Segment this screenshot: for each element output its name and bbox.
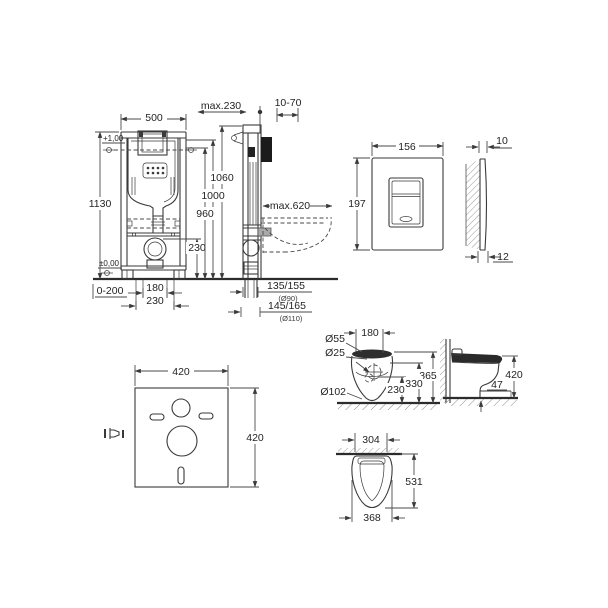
dim-outlet: Ø102 <box>320 386 346 398</box>
dim-plate-thickness-top: 10 <box>496 135 508 147</box>
dim-width: 368 <box>363 512 381 524</box>
mat-slot-bottom <box>178 467 184 484</box>
dim-outlet-height: 230 <box>188 242 206 254</box>
dim-frame-width: 500 <box>145 112 163 124</box>
dim-frame-height: 1130 <box>89 198 112 210</box>
dim-mat-height: 420 <box>246 432 264 444</box>
dim-height-top: 1060 <box>210 172 234 184</box>
frame-side-dimensions: max.230 10-70 1060 1000 960 max.620 135/… <box>186 97 332 323</box>
level-marker-floor <box>101 271 113 276</box>
flush-plate <box>372 158 443 250</box>
bowl-rear-view: Ø55 Ø25 Ø102 180 365 330 230 <box>320 327 440 410</box>
flush-actuator-side <box>261 137 272 162</box>
dim-drain-b-pipe: (Ø110) <box>280 314 303 323</box>
dim-wall-width: 304 <box>362 434 380 446</box>
flush-plate-front-view: 156 197 <box>344 140 443 250</box>
mat-slot-left <box>150 414 164 420</box>
dim-rod-spacing: 230 <box>146 295 164 307</box>
seat-rear <box>352 350 392 359</box>
sound-mat <box>135 388 228 487</box>
dim-hole-spacing: 180 <box>361 327 379 339</box>
dim-height-mid: 1000 <box>201 190 225 202</box>
dim-mat-width: 420 <box>172 366 190 378</box>
dim-drain-b: 145/165 <box>268 300 306 312</box>
mat-slot-right <box>199 413 213 419</box>
dim-hole-small: Ø25 <box>325 347 345 359</box>
flush-plate-side-view: 10 12 <box>465 135 513 263</box>
dim-height-low: 230 <box>387 384 405 396</box>
bowl-mounting-plate <box>258 228 271 236</box>
bowl-side-view: 420 47 <box>440 339 526 412</box>
dim-step: 47 <box>491 379 503 391</box>
wc-installation-dimension-drawing: 500 1130 +1,00 ±0,00 230 0-200 180 230 <box>0 0 608 608</box>
dim-drain-a: 135/155 <box>267 280 305 292</box>
dim-depth: 531 <box>405 476 423 488</box>
dim-depth-max: max.230 <box>201 100 241 112</box>
wall-hatch <box>466 160 480 250</box>
technical-drawing-page: 500 1130 +1,00 ±0,00 230 0-200 180 230 <box>0 0 608 608</box>
dim-height-cistern: 960 <box>196 208 214 220</box>
dim-drain-spacing: 180 <box>146 282 164 294</box>
screw-icon <box>104 428 124 439</box>
plate-slab <box>480 159 487 250</box>
mat-hole-large <box>167 426 197 456</box>
dim-seat-height: 420 <box>505 369 523 381</box>
dim-bowl-depth-max: max.620 <box>270 200 310 212</box>
dim-plate-width: 156 <box>398 141 416 153</box>
dim-plate-thickness-bottom: 12 <box>497 251 509 263</box>
wall-anchor <box>232 136 237 141</box>
dim-hole-large: Ø55 <box>325 333 345 345</box>
outlet-bend <box>144 238 166 260</box>
sound-mat-view: 420 420 <box>104 365 268 487</box>
flush-button-mark <box>400 217 412 222</box>
bowl-top-view: 304 531 368 <box>336 433 426 524</box>
dim-plate-height: 197 <box>348 198 366 210</box>
flush-valve <box>143 163 167 178</box>
dim-height-mid: 330 <box>405 378 423 390</box>
level-marker-upper <box>103 148 115 153</box>
label-level-upper: +1,00 <box>103 134 124 143</box>
frame-fixing-block <box>248 147 255 157</box>
flush-button <box>389 178 423 227</box>
wall-hatch-side <box>440 339 446 403</box>
label-level-floor: ±0,00 <box>99 259 120 268</box>
mat-hole-small <box>172 399 190 417</box>
dim-foot-adjust: 0-200 <box>97 285 124 297</box>
dim-wall-offset: 10-70 <box>275 97 302 109</box>
